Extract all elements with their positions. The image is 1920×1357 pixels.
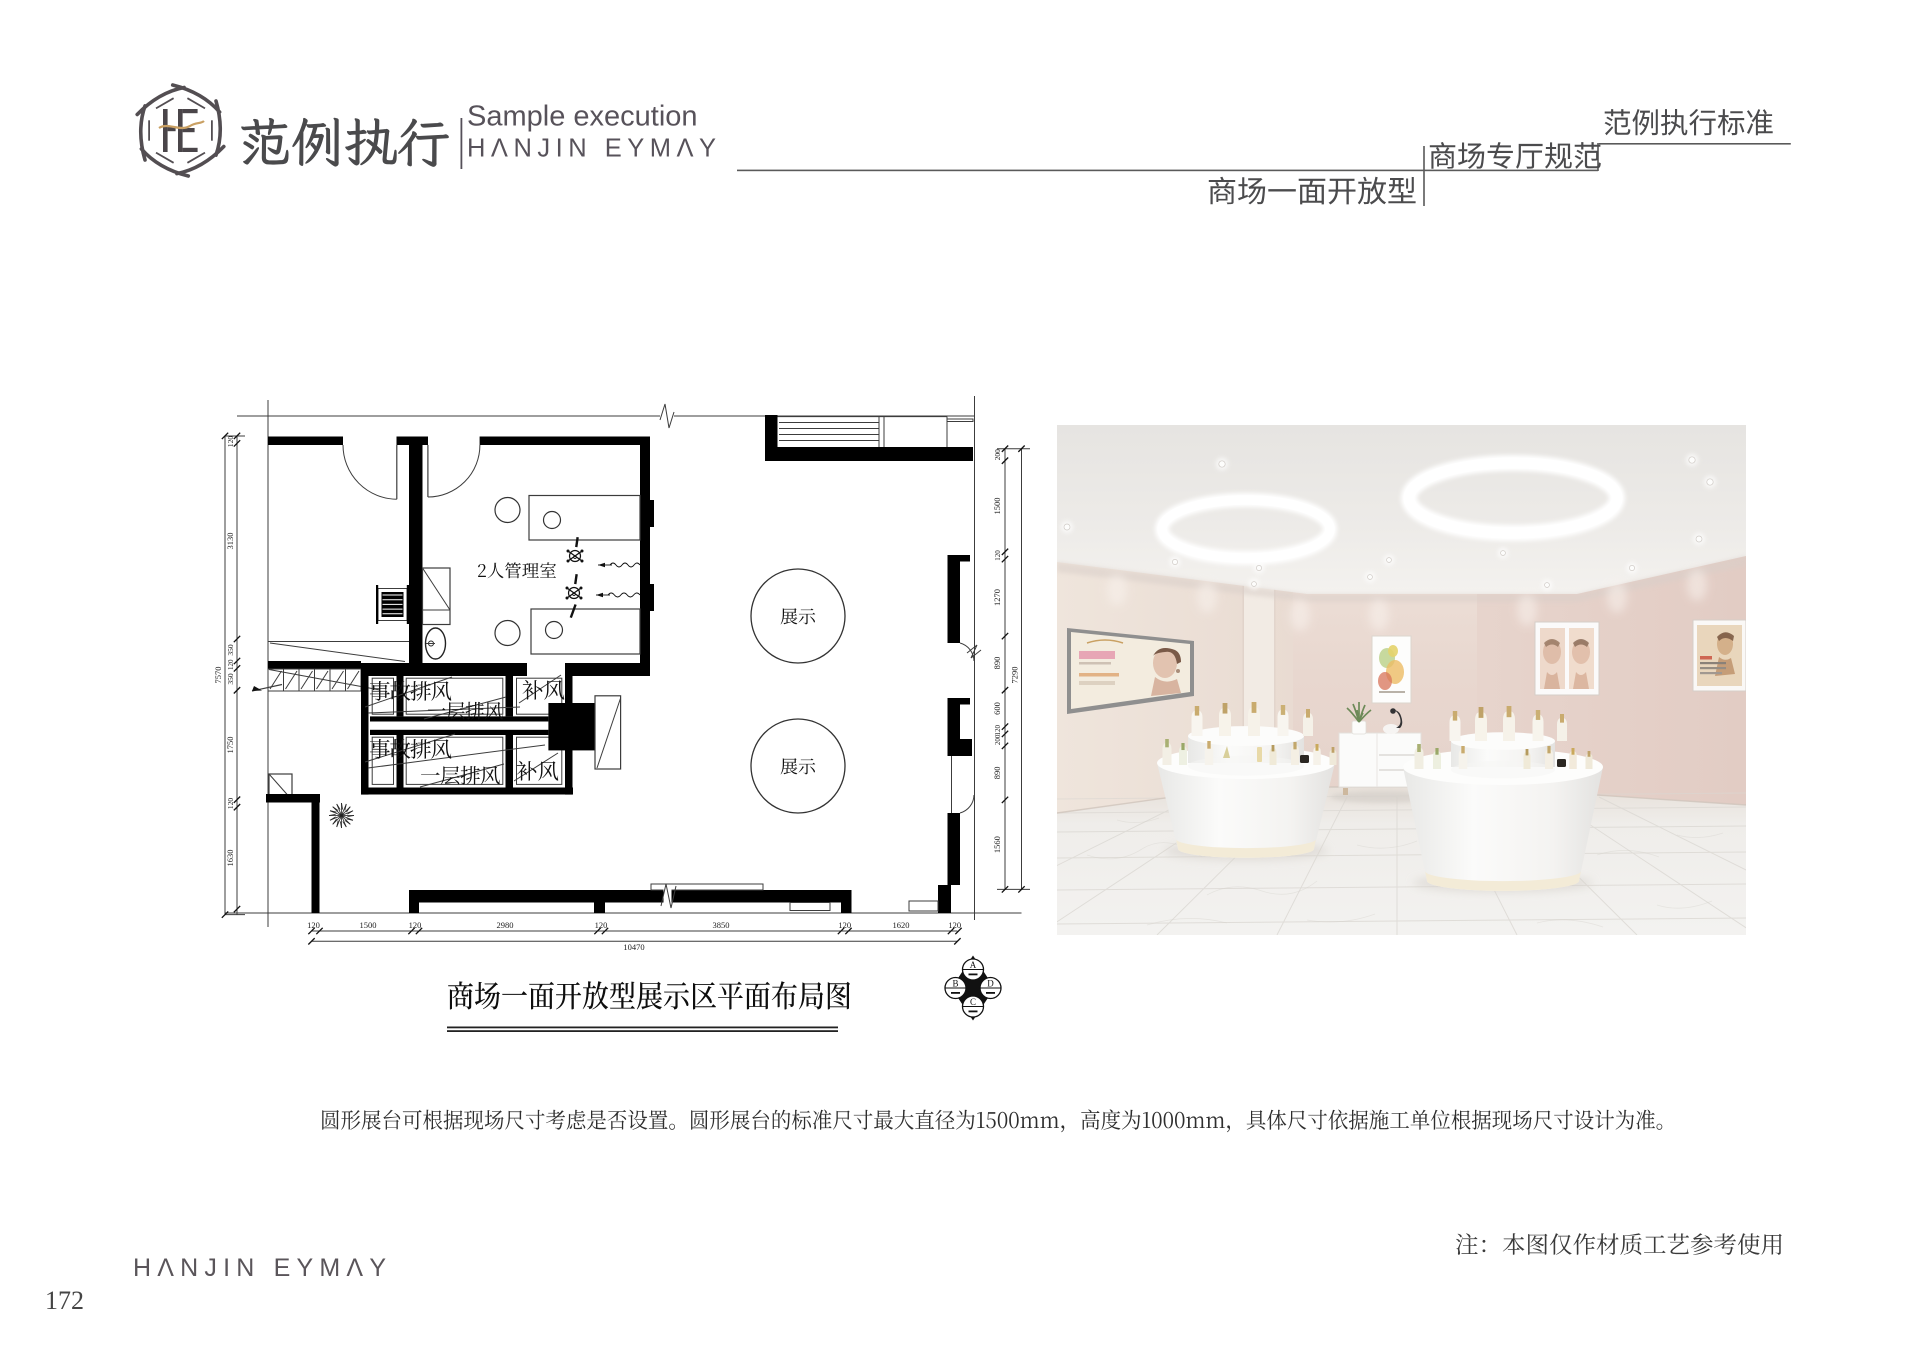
svg-text:1500: 1500	[992, 498, 1002, 515]
svg-text:2980: 2980	[497, 920, 514, 930]
svg-text:200: 200	[993, 449, 1002, 461]
svg-text:3130: 3130	[225, 533, 235, 550]
svg-text:120: 120	[226, 798, 235, 810]
svg-text:350: 350	[226, 644, 235, 656]
svg-text:3850: 3850	[713, 920, 730, 930]
svg-text:600: 600	[992, 702, 1002, 715]
svg-text:HΛNJIN EYMΛY: HΛNJIN EYMΛY	[467, 135, 722, 163]
svg-text:120: 120	[948, 920, 961, 930]
svg-text:120: 120	[838, 920, 851, 930]
svg-text:890: 890	[992, 657, 1002, 670]
svg-text:1560: 1560	[992, 836, 1002, 853]
svg-text:B: B	[952, 979, 958, 989]
svg-text:1630: 1630	[225, 850, 235, 867]
svg-text:120: 120	[994, 550, 1002, 561]
svg-text:1620: 1620	[893, 920, 910, 930]
svg-text:1750: 1750	[225, 737, 235, 754]
svg-text:172: 172	[45, 1286, 84, 1315]
svg-text:120: 120	[307, 920, 320, 930]
svg-text:120: 120	[409, 920, 422, 930]
svg-text:D: D	[987, 979, 994, 989]
svg-text:120: 120	[227, 659, 235, 670]
svg-text:1500: 1500	[360, 920, 377, 930]
svg-text:A: A	[970, 960, 977, 970]
svg-text:120: 120	[595, 920, 608, 930]
svg-text:120: 120	[226, 436, 235, 448]
svg-text:7570: 7570	[213, 667, 223, 684]
svg-text:350: 350	[226, 673, 235, 685]
svg-text:200: 200	[994, 734, 1002, 745]
svg-text:10470: 10470	[623, 942, 644, 952]
svg-text:120: 120	[994, 724, 1002, 735]
svg-text:7290: 7290	[1010, 667, 1020, 684]
svg-text:Sample execution: Sample execution	[467, 101, 698, 133]
svg-text:C: C	[970, 997, 976, 1007]
svg-text:890: 890	[992, 767, 1002, 780]
svg-text:HΛNJIN EYMΛY: HΛNJIN EYMΛY	[133, 1254, 392, 1282]
svg-text:1270: 1270	[992, 589, 1002, 606]
